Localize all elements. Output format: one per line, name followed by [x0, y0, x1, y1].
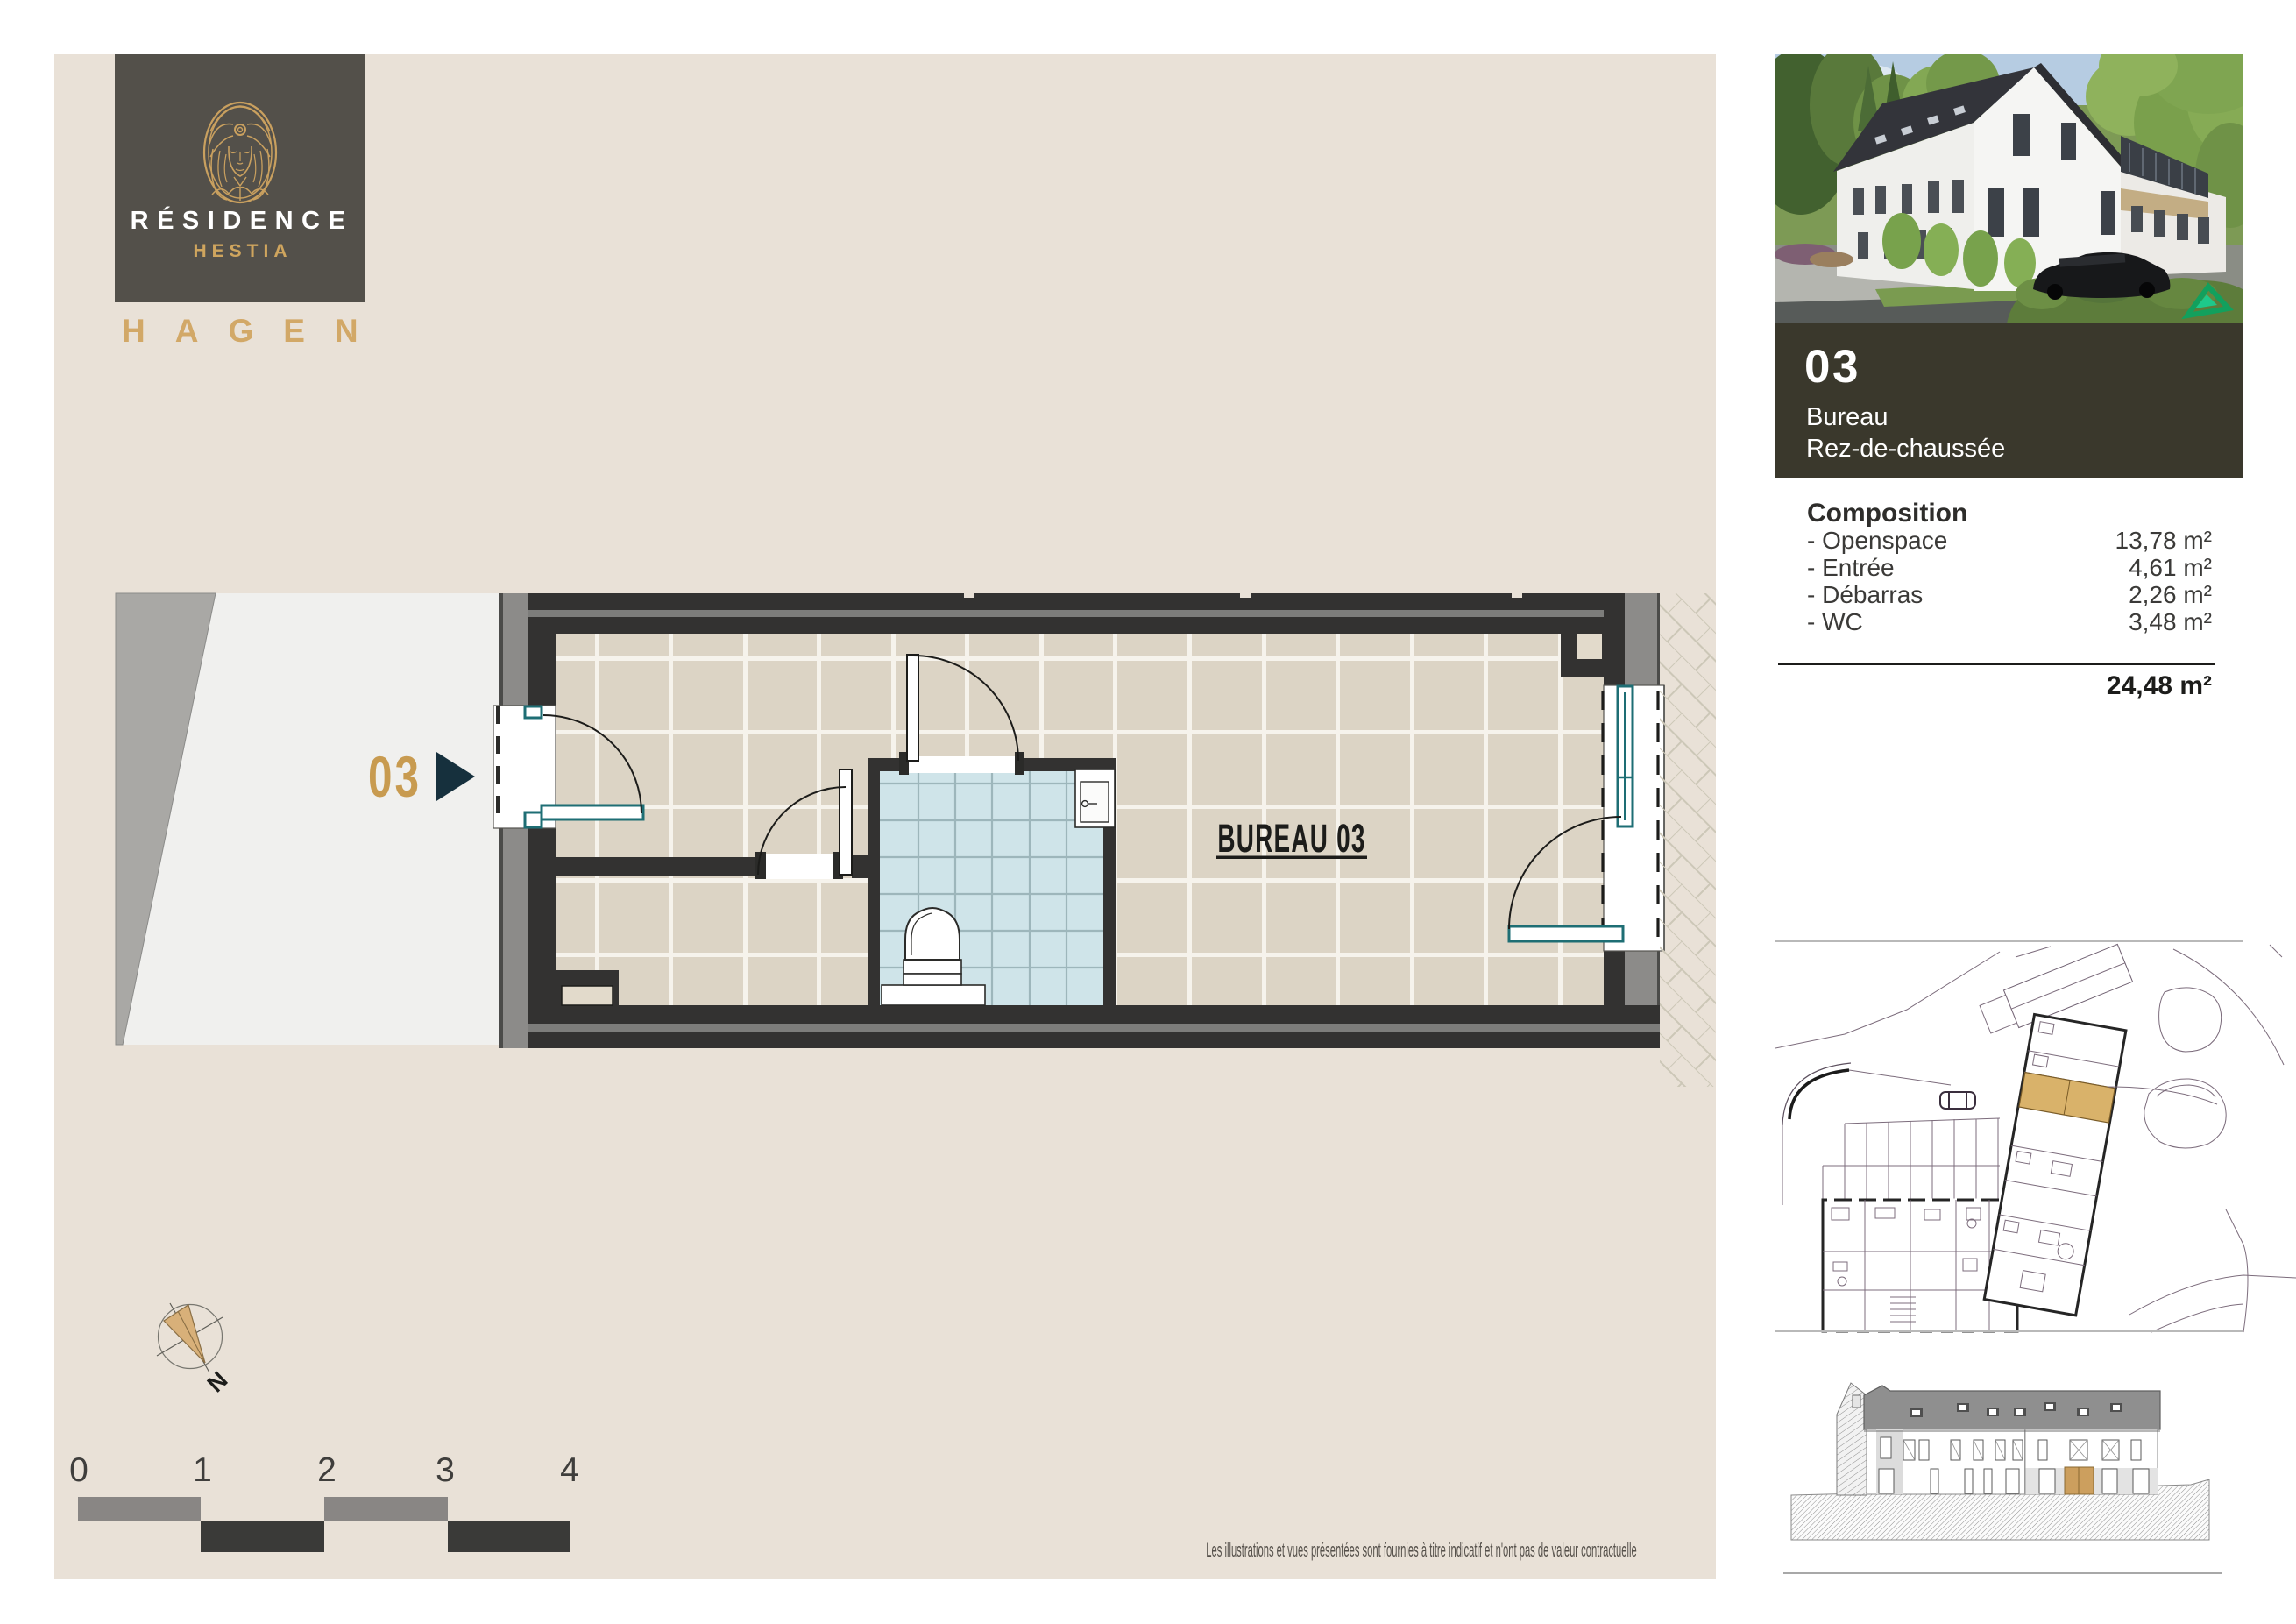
svg-text:2,26 m²: 2,26 m²	[2129, 581, 2212, 608]
svg-text:1: 1	[193, 1451, 212, 1489]
svg-text:03: 03	[368, 745, 422, 810]
svg-text:Bureau: Bureau	[1806, 403, 1889, 431]
svg-text:BUREAU 03: BUREAU 03	[1217, 816, 1365, 860]
svg-text:- Entrée: - Entrée	[1807, 554, 1895, 581]
svg-text:13,78 m²: 13,78 m²	[2115, 527, 2213, 554]
svg-text:4,61 m²: 4,61 m²	[2129, 554, 2212, 581]
svg-text:4: 4	[560, 1451, 579, 1489]
svg-text:24,48 m²: 24,48 m²	[2107, 671, 2212, 700]
svg-text:- Openspace: - Openspace	[1807, 527, 1947, 554]
svg-text:HAGEN: HAGEN	[122, 313, 388, 349]
svg-text:3,48 m²: 3,48 m²	[2129, 608, 2212, 635]
svg-text:RÉSIDENCE: RÉSIDENCE	[131, 205, 354, 235]
svg-text:- WC: - WC	[1807, 608, 1863, 635]
svg-text:HESTIA: HESTIA	[193, 241, 292, 261]
svg-text:Composition: Composition	[1807, 499, 1967, 528]
svg-text:3: 3	[436, 1451, 455, 1489]
svg-text:Rez-de-chaussée: Rez-de-chaussée	[1806, 435, 2005, 463]
svg-text:03: 03	[1804, 341, 1860, 393]
svg-text:2: 2	[317, 1451, 337, 1489]
svg-text:- Débarras: - Débarras	[1807, 581, 1923, 608]
svg-text:0: 0	[69, 1451, 89, 1489]
svg-text:Les illustrations et vues prés: Les illustrations et vues présentées son…	[1206, 1539, 1636, 1561]
